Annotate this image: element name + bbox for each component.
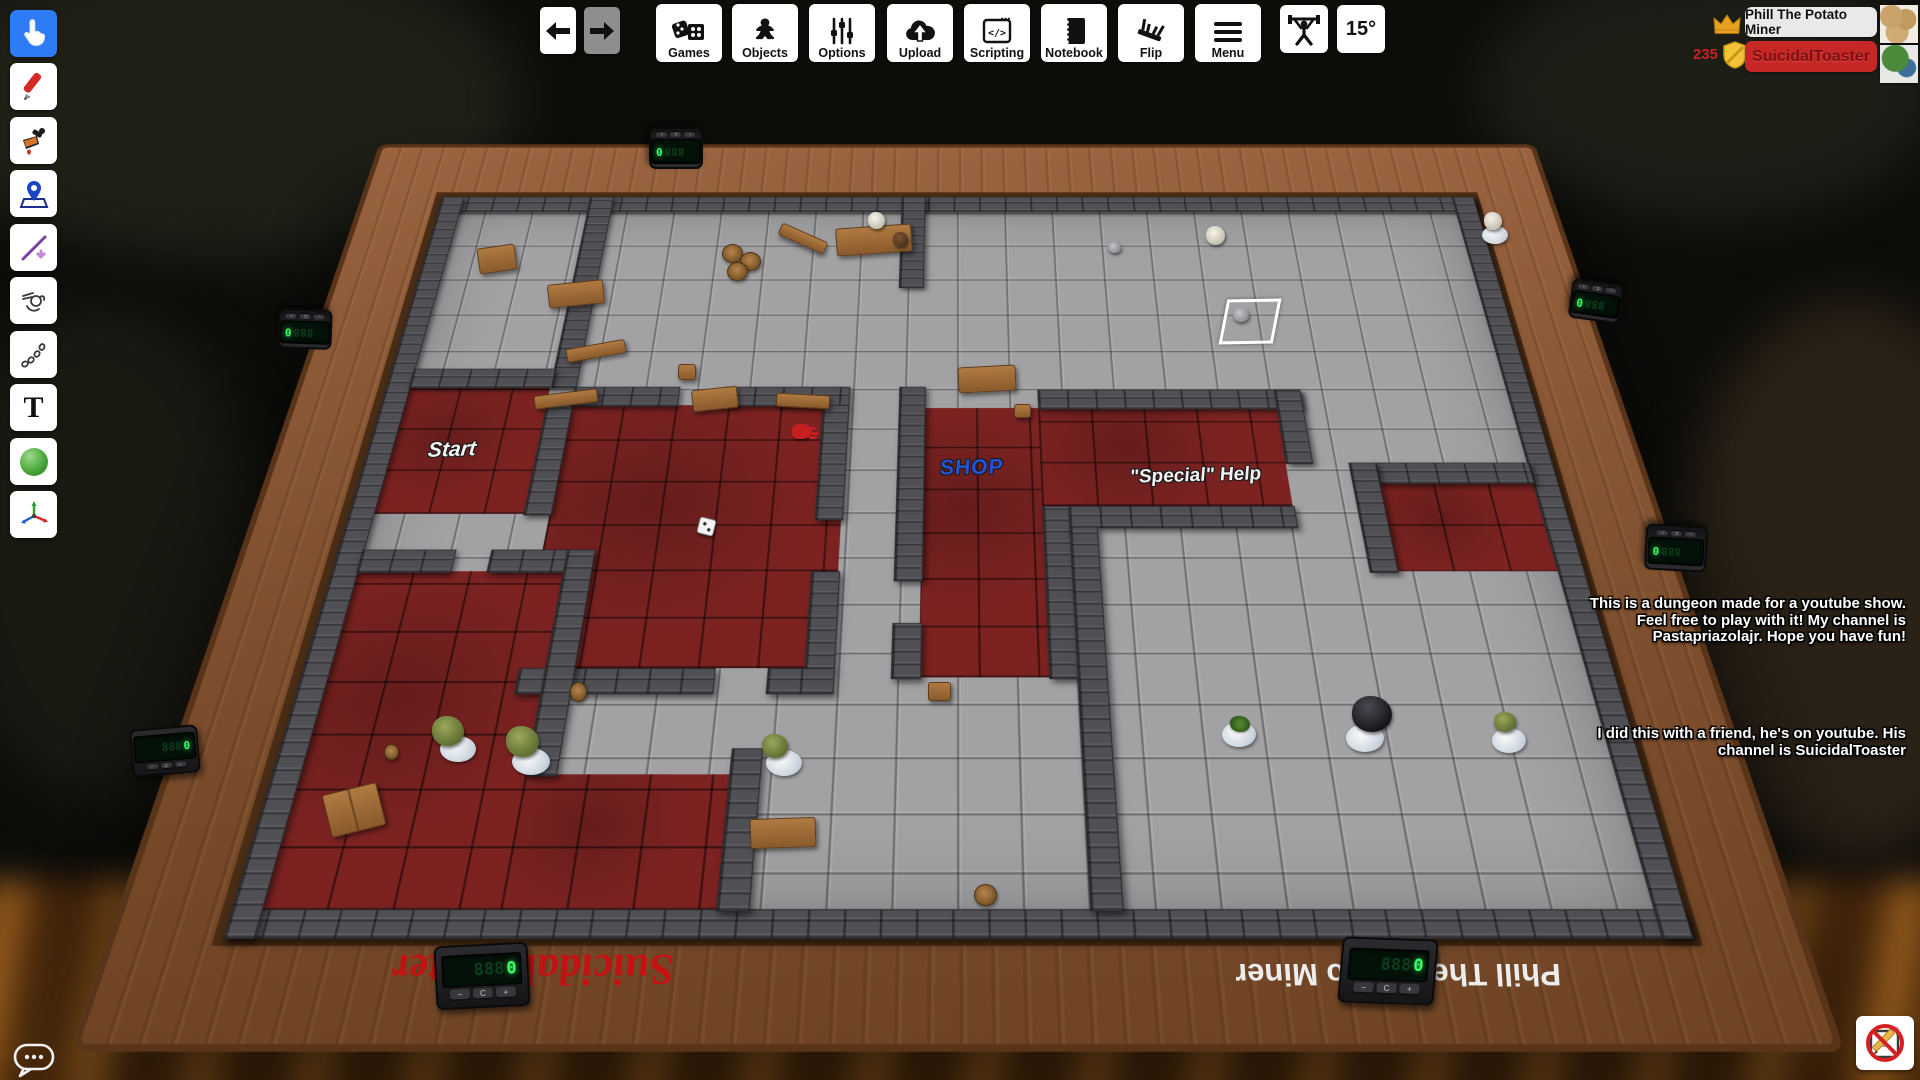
gizmo-tool[interactable]: [10, 491, 57, 538]
small-crate[interactable]: [928, 682, 951, 701]
plant[interactable]: [1230, 716, 1250, 732]
bear-mini[interactable]: [893, 232, 908, 247]
counter[interactable]: 8880 −C+: [649, 127, 703, 169]
shop-corridor-tiles: [919, 408, 1049, 677]
barrel[interactable]: [974, 884, 997, 906]
counter-minus-button[interactable]: −: [1685, 532, 1696, 538]
back-button[interactable]: [540, 7, 576, 54]
arrow-right-icon: [589, 21, 615, 41]
grab-tool[interactable]: [10, 10, 57, 57]
low-table[interactable]: [749, 817, 816, 849]
lift-button[interactable]: [1280, 5, 1328, 53]
ogre-mini[interactable]: [432, 716, 464, 746]
counter[interactable]: 8880 −C+: [433, 942, 530, 1011]
wall-bottom: [223, 909, 1694, 939]
counter-plus-button[interactable]: +: [1399, 983, 1420, 994]
token-tool[interactable]: [10, 438, 57, 485]
wall-seg: [1037, 390, 1303, 410]
counter-display: 8880: [279, 320, 330, 345]
stool[interactable]: [1014, 404, 1031, 418]
dungeon-floor: [224, 197, 1691, 937]
flick-tool[interactable]: [10, 277, 57, 324]
svg-text:</>: </>: [988, 28, 1006, 39]
dice-grid-icon: [672, 16, 706, 46]
counter-minus-button[interactable]: −: [147, 764, 158, 770]
flip-button[interactable]: Flip: [1118, 4, 1184, 62]
games-button[interactable]: Games: [656, 4, 722, 62]
meeple-icon: [750, 16, 780, 46]
counter[interactable]: 8880 −C+: [1337, 936, 1439, 1005]
wall-seg: [1374, 463, 1535, 484]
angle-label: 15°: [1346, 18, 1376, 41]
potato-avatar[interactable]: [1880, 5, 1918, 43]
player-host-pill[interactable]: Phill The Potato Miner: [1745, 7, 1877, 37]
code-window-icon: </>: [981, 16, 1013, 46]
robed-mini[interactable]: [1484, 212, 1502, 230]
bottom-strip-tiles: [500, 774, 729, 909]
wall-seg: [486, 550, 569, 573]
counter-clear-button[interactable]: C: [1376, 983, 1397, 994]
pepe-avatar[interactable]: [1880, 45, 1918, 83]
no-draw-button[interactable]: [1856, 1016, 1914, 1070]
paintbrush-icon: [19, 126, 49, 156]
wall-seg: [891, 623, 922, 679]
ogre-mini[interactable]: [506, 726, 539, 757]
counter-plus-button[interactable]: +: [496, 986, 516, 997]
counter-display: 8880: [1347, 948, 1430, 983]
notebook-button[interactable]: Notebook: [1041, 4, 1107, 62]
hand-pointer-icon: [20, 19, 48, 49]
wall-seg: [1068, 506, 1298, 528]
note-friend-info: I did this with a friend, he's on youtub…: [1306, 726, 1906, 759]
counter-clear-button[interactable]: C: [473, 987, 493, 998]
counter-plus-button[interactable]: +: [1657, 530, 1668, 536]
zone-tool[interactable]: [10, 170, 57, 217]
start-label: Start: [427, 437, 478, 463]
shopkeeper-mini[interactable]: [868, 212, 885, 229]
counter-plus-button[interactable]: +: [657, 132, 668, 137]
flick-hand-icon: [19, 286, 49, 316]
green-sphere-icon: [20, 448, 48, 476]
jug[interactable]: [384, 744, 399, 760]
special-room-tiles: [1038, 408, 1293, 506]
goblin-mini[interactable]: [762, 734, 788, 758]
player-client-name: SuicidalToaster: [1752, 48, 1870, 66]
mace-item[interactable]: [1108, 242, 1121, 253]
cloud-upload-icon: [904, 16, 936, 46]
gizmo-axes-icon: [19, 500, 49, 530]
counter[interactable]: 8880 −C+: [1567, 278, 1624, 325]
shop-label: SHOP: [939, 455, 1005, 480]
counter-clear-button[interactable]: C: [300, 314, 311, 319]
line-arrow-icon: [19, 233, 49, 263]
chain-icon: [19, 340, 49, 370]
wall-seg: [408, 369, 556, 388]
counter-minus-button[interactable]: −: [1606, 287, 1618, 293]
counter-clear-button[interactable]: C: [1592, 285, 1604, 291]
side-table[interactable]: [957, 365, 1016, 394]
counter-display: 8880: [1570, 290, 1621, 319]
upload-button[interactable]: Upload: [887, 4, 953, 62]
sliders-icon: [828, 16, 856, 46]
map-pin-icon: [19, 179, 49, 209]
text-tool[interactable]: T: [10, 384, 57, 431]
counter-display: 8880: [441, 952, 523, 988]
forward-button[interactable]: [584, 7, 620, 54]
counter-minus-button[interactable]: −: [314, 314, 325, 319]
selection-box: [1219, 299, 1282, 345]
draw-tool[interactable]: [10, 63, 57, 110]
wall-seg: [894, 387, 926, 582]
note-dungeon-info: This is a dungeon made for a youtube sho…: [1306, 596, 1906, 646]
options-button[interactable]: Options: [809, 4, 875, 62]
special-help-label: "Special" Help: [1129, 463, 1262, 488]
weightlifter-icon: [1287, 11, 1321, 47]
counter-clear-button[interactable]: C: [671, 132, 682, 137]
counter-display: 8880: [651, 139, 701, 163]
right-notch-tiles: [1378, 482, 1558, 571]
counter-plus-button[interactable]: +: [286, 313, 297, 318]
text-T-icon: T: [23, 393, 43, 423]
wall-seg: [804, 571, 840, 670]
counter-minus-button[interactable]: −: [450, 989, 470, 1000]
menu-button[interactable]: Menu: [1195, 4, 1261, 62]
hamburger-icon: [1213, 18, 1243, 46]
counter[interactable]: 8880 −C+: [129, 724, 201, 778]
notebook-icon: [1060, 16, 1088, 46]
vase[interactable]: [570, 682, 587, 702]
jug-table[interactable]: [476, 243, 517, 274]
objects-button[interactable]: Objects: [732, 4, 798, 62]
wall-seg: [766, 668, 835, 694]
paint-tool[interactable]: [10, 117, 57, 164]
angle-button[interactable]: 15°: [1337, 5, 1385, 53]
chat-icon: [12, 1042, 58, 1078]
no-draw-icon: [1863, 1021, 1907, 1065]
line-tool[interactable]: [10, 224, 57, 271]
wall-seg: [1069, 527, 1123, 912]
counter[interactable]: 8880 −C+: [1644, 523, 1708, 572]
barrel[interactable]: [727, 262, 748, 281]
counter-clear-button[interactable]: C: [1671, 531, 1682, 537]
counter[interactable]: 8880 −C+: [277, 308, 332, 350]
selected-mini[interactable]: [1233, 308, 1249, 322]
bench[interactable]: [776, 393, 831, 410]
robed-mini[interactable]: [1206, 226, 1225, 245]
counter-display: 8880: [1647, 537, 1705, 566]
crown-icon: [1712, 13, 1742, 35]
pencil-icon: [19, 72, 49, 102]
tabletop-simulator-screen: { "toolbar": { "buttons": [ {"label": "G…: [0, 0, 1920, 1080]
joint-tool[interactable]: [10, 331, 57, 378]
counter-minus-button[interactable]: −: [685, 132, 696, 137]
chair[interactable]: [678, 364, 696, 380]
flip-table-icon: [1135, 16, 1167, 46]
counter-plus-button[interactable]: +: [175, 762, 186, 768]
counter-clear-button[interactable]: C: [161, 763, 172, 769]
counter-plus-button[interactable]: +: [1578, 283, 1590, 289]
wall-seg: [356, 550, 457, 573]
chat-button[interactable]: [12, 1042, 58, 1078]
player-client-pill[interactable]: SuicidalToaster: [1745, 41, 1877, 72]
player-host-name: Phill The Potato Miner: [1745, 7, 1877, 37]
scripting-button[interactable]: </> Scripting: [964, 4, 1030, 62]
counter-display: 8880: [133, 731, 196, 764]
table-name-left: SuicidalToaster: [321, 944, 745, 995]
counter-minus-button[interactable]: −: [1353, 982, 1374, 993]
ping-value: 235: [1684, 46, 1718, 63]
arrow-left-icon: [545, 21, 571, 41]
